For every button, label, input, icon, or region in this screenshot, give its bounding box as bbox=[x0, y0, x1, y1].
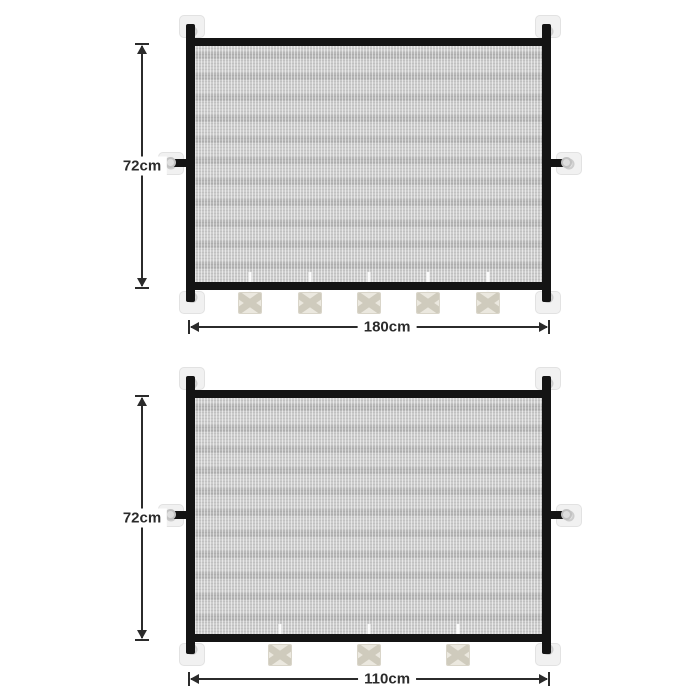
strap-buckle-icon bbox=[476, 292, 500, 314]
arrow-down-icon bbox=[137, 278, 147, 287]
product-dimension-diagram: 72cm 180cm bbox=[0, 0, 700, 700]
width-label: 110cm bbox=[358, 670, 416, 689]
strap-buckle-icon bbox=[357, 644, 381, 666]
frame-pole-right bbox=[542, 24, 551, 302]
arrow-right-icon bbox=[539, 674, 548, 684]
width-dimension-arrow: 180cm bbox=[188, 320, 550, 334]
strap-buckle-icon bbox=[238, 292, 262, 314]
height-dimension-arrow: 72cm bbox=[135, 395, 149, 641]
width-label: 180cm bbox=[358, 318, 417, 337]
buckle-row bbox=[191, 272, 547, 318]
mesh-panel bbox=[195, 397, 542, 635]
dimension-tick bbox=[548, 672, 550, 686]
buckle-row bbox=[191, 624, 547, 670]
strap-buckle-icon bbox=[416, 292, 440, 314]
width-dimension-arrow: 110cm bbox=[188, 672, 550, 686]
strap-buckle-icon bbox=[446, 644, 470, 666]
gate-figure-110cm: 72cm 110cm bbox=[0, 352, 700, 700]
height-dimension-arrow: 72cm bbox=[135, 43, 149, 289]
strap-buckle-icon bbox=[298, 292, 322, 314]
frame-pole-left bbox=[186, 24, 195, 302]
frame-pole-left bbox=[186, 376, 195, 654]
frame-bar-bottom bbox=[191, 634, 547, 642]
side-mount-cup-icon bbox=[561, 509, 572, 520]
dimension-tick bbox=[135, 287, 149, 289]
side-mount-cup-icon bbox=[561, 157, 572, 168]
frame-bar-top bbox=[191, 390, 547, 398]
mesh-panel bbox=[195, 45, 542, 283]
strap-buckle-icon bbox=[357, 292, 381, 314]
height-label: 72cm bbox=[117, 509, 167, 528]
arrow-down-icon bbox=[137, 630, 147, 639]
dimension-tick bbox=[135, 639, 149, 641]
height-label: 72cm bbox=[117, 157, 167, 176]
gate-figure-180cm: 72cm 180cm bbox=[0, 0, 700, 348]
frame-bar-top bbox=[191, 38, 547, 46]
strap-buckle-icon bbox=[268, 644, 292, 666]
arrow-right-icon bbox=[539, 322, 548, 332]
frame-bar-bottom bbox=[191, 282, 547, 290]
dimension-tick bbox=[548, 320, 550, 334]
frame-pole-right bbox=[542, 376, 551, 654]
